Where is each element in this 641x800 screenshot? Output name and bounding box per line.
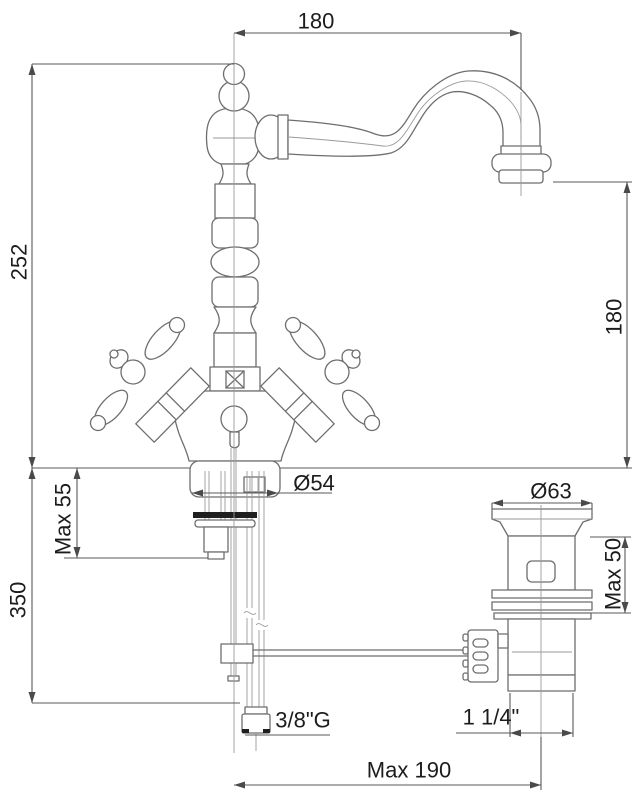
column-segment: [214, 333, 256, 367]
technical-drawing: 180 252 180 Max 55 350 Ø54 Ø63 Max 50 3/…: [0, 0, 641, 800]
arrowhead: [29, 457, 36, 468]
dim-label-drain-clamp: Max 50: [601, 538, 626, 610]
column-waist: [214, 307, 256, 333]
rod-cross-fitting: [221, 644, 253, 663]
nut-collar: [498, 634, 508, 648]
right-cross-arm-cap: [352, 350, 360, 358]
hose-nut-collar: [245, 707, 267, 714]
column-ring: [212, 277, 258, 307]
faucet-column: [210, 184, 260, 391]
arrowhead: [29, 692, 36, 703]
base-gasket: [193, 512, 257, 518]
hose-end-nut: [242, 707, 270, 751]
left-lever-upper-tip: [170, 318, 185, 333]
arrowhead: [581, 500, 592, 507]
spout-outline: [288, 71, 540, 156]
column-segment: [215, 184, 255, 218]
arrowhead: [510, 730, 521, 737]
faucet-drawing: [89, 64, 551, 462]
column-ring: [212, 218, 258, 248]
drain-washer: [492, 602, 592, 610]
supply-hose: [244, 471, 268, 708]
right-handle-hub: [325, 360, 349, 384]
mounting-nut: [204, 527, 228, 552]
drain-flange: [492, 509, 592, 536]
rod-adjuster-nut: [463, 630, 508, 682]
body-ball: [206, 108, 259, 164]
dim-label-hose-length: 350: [6, 582, 31, 619]
dim-label-base-clamp: Max 55: [51, 483, 76, 555]
knurl-bump: [463, 647, 468, 654]
page: 180 252 180 Max 55 350 Ø54 Ø63 Max 50 3/…: [0, 0, 641, 800]
hose-nut-mark: [263, 729, 270, 733]
dim-label-top-width: 180: [298, 9, 335, 34]
arrowhead: [29, 468, 36, 479]
dim-label-drain-thread: 1 1/4": [463, 705, 520, 730]
arrowhead: [492, 500, 503, 507]
column-bulge: [211, 247, 259, 277]
dim-label-supply-thread: 3/8"G: [275, 708, 331, 733]
drain-washer: [492, 590, 592, 598]
arrowhead: [624, 182, 631, 193]
hose-nut-mark: [242, 729, 249, 733]
left-handle-hub: [121, 360, 145, 384]
hose-break: [256, 624, 268, 627]
dim-label-drain-diameter: Ø63: [530, 479, 572, 504]
dim-label-spout-height: 180: [602, 299, 627, 336]
arrowhead: [510, 30, 521, 37]
knurl-bump: [463, 634, 468, 641]
knurl-bump: [463, 673, 468, 680]
arrowhead: [530, 782, 541, 789]
left-lever-lower-tip: [91, 416, 106, 431]
arrowhead: [29, 64, 36, 75]
left-cross-arm-cap: [110, 350, 118, 358]
drain-assembly: [463, 509, 592, 691]
base-flange: [190, 461, 280, 497]
arrowhead: [562, 730, 573, 737]
spout-outlet-band: [492, 154, 551, 172]
spout-collar-ring: [278, 115, 288, 159]
drain-body-lower: [508, 619, 575, 675]
mounting-nut-tip: [208, 552, 224, 559]
hose-break: [244, 612, 256, 615]
right-lever-lower-tip: [365, 416, 380, 431]
drain-locknut: [494, 613, 591, 619]
arrowhead: [624, 457, 631, 468]
dim-label-left-height: 252: [7, 244, 32, 281]
drain-tailpiece: [508, 675, 575, 691]
base-washer: [195, 520, 255, 527]
arrowhead: [234, 30, 245, 37]
popup-knob-stem: [230, 432, 239, 448]
dim-label-rod-reach: Max 190: [367, 758, 451, 783]
right-lever-upper-tip: [286, 318, 301, 333]
dim-label-base-diameter: Ø54: [293, 471, 335, 496]
arrowhead: [74, 468, 81, 479]
knurl-bump: [463, 660, 468, 667]
body-neck: [219, 164, 251, 184]
arrowhead: [234, 782, 245, 789]
rod-end: [228, 676, 239, 681]
faucet-spout: [255, 71, 551, 183]
